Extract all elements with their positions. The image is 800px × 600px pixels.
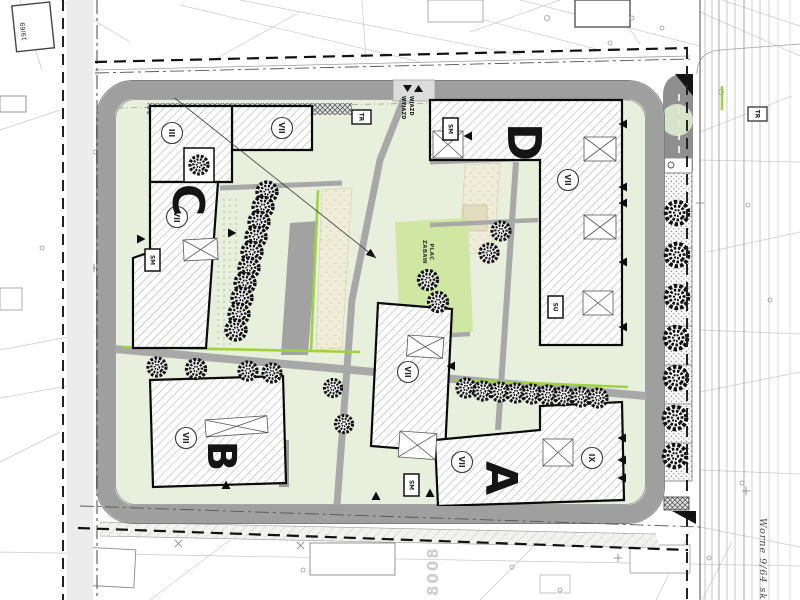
tree-icon — [226, 320, 246, 340]
tree-icon — [555, 387, 573, 405]
transformer-label: TR — [357, 113, 363, 122]
building-letter-a: A — [475, 461, 526, 495]
storey-badge-c-top: III — [167, 129, 176, 138]
gate-wedge — [672, 511, 696, 524]
storey-badge-d-main: VII — [563, 174, 572, 186]
site-plan-screenshot: 19/69 8008 Worne 9/64 sko TR — [0, 0, 800, 600]
background-building — [0, 288, 22, 310]
sm-label: SM — [148, 255, 154, 265]
background-building — [540, 575, 570, 593]
tree-icon — [492, 222, 510, 240]
transformer-box-site: TR — [352, 110, 371, 124]
background-building — [0, 96, 26, 112]
storey-badge-center: VII — [403, 366, 412, 378]
parcel-building-top-left: 19/69 — [12, 2, 55, 52]
street-name-right: Worne 9/64 sko — [757, 518, 768, 600]
tree-icon — [480, 244, 498, 262]
building-letter-c: C — [162, 184, 213, 216]
boundary-dashed-north — [95, 48, 688, 62]
southeast-gate — [664, 497, 696, 524]
green-circle-overlay — [661, 104, 693, 136]
tree-icon — [419, 271, 438, 290]
playground-label-line1: PLAC — [428, 243, 434, 260]
gate-entry-label: WJAZD — [408, 96, 414, 116]
tree-icon — [335, 415, 352, 432]
background-building — [575, 0, 630, 27]
tree-icon — [572, 388, 590, 406]
building-letter-b: B — [198, 441, 244, 472]
tree-icon — [666, 202, 689, 225]
storey-badge-c-wing: VII — [277, 122, 286, 134]
tree-icon — [190, 156, 208, 174]
building-letter-d: D — [497, 123, 551, 161]
su-label: SU — [551, 303, 557, 312]
west-verge — [67, 0, 93, 600]
sm-label: SM — [407, 480, 413, 490]
tree-icon — [263, 364, 281, 382]
north-driveway — [393, 80, 435, 101]
background-building — [428, 0, 483, 22]
tree-icon — [589, 389, 607, 407]
tree-icon — [665, 327, 688, 350]
tree-icon — [187, 360, 206, 379]
transformer-label: TR — [753, 110, 759, 119]
sm-label: SM — [446, 124, 452, 134]
playground-label-line2: ZABAW — [421, 240, 427, 264]
tree-icon — [429, 293, 448, 312]
tree-icon — [457, 379, 475, 397]
faint-plot-number: 8008 — [424, 546, 442, 596]
tree-icon — [239, 362, 257, 380]
site-plan-drawing: 19/69 8008 Worne 9/64 sko TR — [0, 0, 800, 600]
tree-icon — [664, 407, 687, 430]
storey-badge-a-main: VII — [457, 456, 466, 468]
tree-icon — [474, 382, 492, 400]
background-building — [310, 543, 395, 575]
tree-icon — [666, 286, 689, 309]
storey-badge-b-main: VII — [181, 432, 190, 444]
storey-badge-a-right: IX — [587, 454, 596, 463]
gate-exit-label: WYJAZD — [400, 96, 406, 120]
playground-label: PLAC ZABAW — [421, 240, 434, 264]
tree-icon — [665, 367, 688, 390]
parcel-dashdot-north — [95, 59, 690, 73]
tree-icon — [666, 244, 689, 267]
tree-icon — [664, 445, 687, 468]
tree-icon — [324, 379, 341, 396]
tree-icon — [148, 358, 166, 376]
